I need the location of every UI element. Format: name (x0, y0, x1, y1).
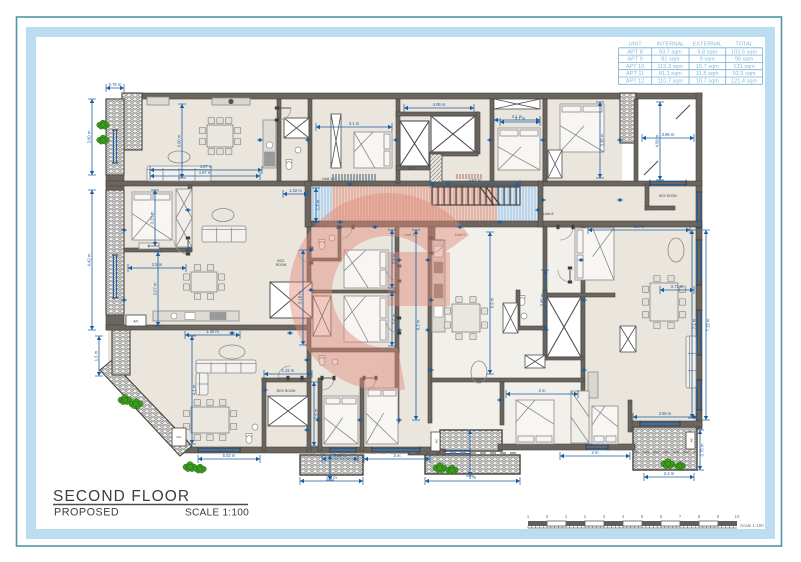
svg-text:1.6 m: 1.6 m (94, 350, 99, 361)
svg-text:2.5 m: 2.5 m (152, 262, 163, 267)
svg-text:SCALE 1:100: SCALE 1:100 (185, 508, 249, 519)
svg-text:1.3 m: 1.3 m (316, 199, 321, 210)
svg-text:APT 12: APT 12 (626, 79, 645, 85)
svg-text:BOX ROOM: BOX ROOM (659, 194, 677, 198)
svg-text:3.85 m: 3.85 m (540, 293, 545, 306)
svg-text:TOTAL: TOTAL (735, 42, 753, 48)
svg-text:4.06 m: 4.06 m (433, 102, 446, 107)
svg-text:A/C: A/C (176, 435, 182, 439)
svg-text:90 sqm: 90 sqm (735, 57, 754, 63)
svg-text:115.3 sqm: 115.3 sqm (657, 64, 683, 70)
svg-text:5.18 m: 5.18 m (298, 291, 303, 304)
svg-text:81.1 sqm: 81.1 sqm (659, 71, 682, 77)
svg-text:7.1 m: 7.1 m (692, 318, 697, 329)
svg-text:A/C: A/C (690, 438, 694, 443)
svg-text:APT 9: APT 9 (627, 57, 642, 63)
svg-text:6.00 m: 6.00 m (177, 134, 182, 147)
svg-text:3 m: 3 m (539, 388, 546, 393)
svg-text:4.87 m: 4.87 m (200, 164, 213, 169)
svg-text:Unit 8: Unit 8 (543, 211, 554, 216)
svg-text:3.60 m: 3.60 m (87, 130, 92, 143)
svg-text:2.8 m: 2.8 m (392, 253, 397, 264)
svg-text:2.9 m: 2.9 m (314, 408, 319, 419)
svg-text:0.75 m: 0.75 m (109, 82, 122, 87)
svg-text:3.20 m: 3.20 m (334, 453, 347, 458)
svg-text:3.23 m: 3.23 m (150, 211, 155, 224)
svg-text:103.5 sqm: 103.5 sqm (731, 49, 757, 55)
svg-text:5.02 m: 5.02 m (223, 453, 236, 458)
svg-text:APT 11: APT 11 (626, 71, 644, 77)
svg-text:10.7 sqm: 10.7 sqm (696, 79, 719, 85)
svg-text:1.22 m: 1.22 m (282, 368, 295, 373)
svg-text:3.9 m: 3.9 m (634, 224, 645, 229)
svg-text:11.8 sqm: 11.8 sqm (696, 71, 719, 77)
svg-text:9 sqm: 9 sqm (700, 57, 716, 63)
svg-text:4.58 m: 4.58 m (655, 134, 660, 147)
svg-text:3 m: 3 m (394, 453, 401, 458)
svg-text:3.1 m: 3.1 m (512, 114, 523, 119)
svg-text:3.07 m: 3.07 m (153, 282, 158, 295)
svg-text:6.9 m: 6.9 m (490, 297, 495, 308)
svg-text:3.71 m: 3.71 m (671, 284, 684, 289)
svg-text:1.02 m: 1.02 m (289, 188, 302, 193)
svg-text:APT 8: APT 8 (627, 49, 642, 55)
svg-text:7.13 m: 7.13 m (706, 318, 711, 331)
svg-text:3.58 m: 3.58 m (659, 411, 672, 416)
svg-text:10: 10 (734, 514, 740, 519)
svg-text:UNIT: UNIT (629, 42, 643, 48)
svg-text:ROOM: ROOM (276, 263, 287, 267)
svg-text:INTERNAL: INTERNAL (657, 42, 685, 48)
svg-text:A/C: A/C (133, 320, 139, 324)
svg-text:LIFT: LIFT (408, 167, 416, 171)
svg-text:131 sqm: 131 sqm (733, 64, 755, 70)
svg-text:A/C: A/C (435, 439, 439, 444)
svg-text:3.2 m: 3.2 m (664, 471, 675, 476)
svg-text:110.7 sqm: 110.7 sqm (657, 79, 683, 85)
svg-text:121.4 sqm: 121.4 sqm (731, 79, 757, 85)
svg-text:3.0 m: 3.0 m (326, 475, 337, 480)
svg-text:81 sqm: 81 sqm (661, 57, 680, 63)
svg-text:SECOND FLOOR: SECOND FLOOR (53, 488, 190, 505)
svg-text:15.7 sqm: 15.7 sqm (696, 64, 719, 70)
svg-text:3.96 m: 3.96 m (662, 132, 675, 137)
svg-text:EXTERNAL: EXTERNAL (693, 42, 723, 48)
svg-text:9.3 m: 9.3 m (416, 319, 421, 330)
svg-text:PROPOSED: PROPOSED (54, 507, 119, 519)
svg-text:93.7 sqm: 93.7 sqm (659, 49, 682, 55)
svg-text:4.87 m: 4.87 m (199, 170, 212, 175)
svg-text:Scale 1:100: Scale 1:100 (740, 523, 764, 528)
svg-text:2 m: 2 m (592, 450, 599, 455)
svg-text:9.8 sqm: 9.8 sqm (697, 49, 717, 55)
svg-text:4.87 m: 4.87 m (469, 178, 482, 183)
svg-text:3.1 m: 3.1 m (349, 121, 360, 126)
svg-text:1.40 m: 1.40 m (206, 329, 219, 334)
svg-text:4.1 m: 4.1 m (192, 384, 197, 395)
svg-text:92.9 sqm: 92.9 sqm (733, 71, 756, 77)
svg-text:0.75 m: 0.75 m (700, 443, 705, 456)
svg-text:4.42 m: 4.42 m (87, 253, 92, 266)
svg-text:2.6 m: 2.6 m (392, 313, 397, 324)
svg-text:3.36 m: 3.36 m (600, 133, 605, 146)
svg-text:BOX ROOM: BOX ROOM (277, 389, 296, 393)
svg-text:APT 10: APT 10 (626, 64, 645, 70)
